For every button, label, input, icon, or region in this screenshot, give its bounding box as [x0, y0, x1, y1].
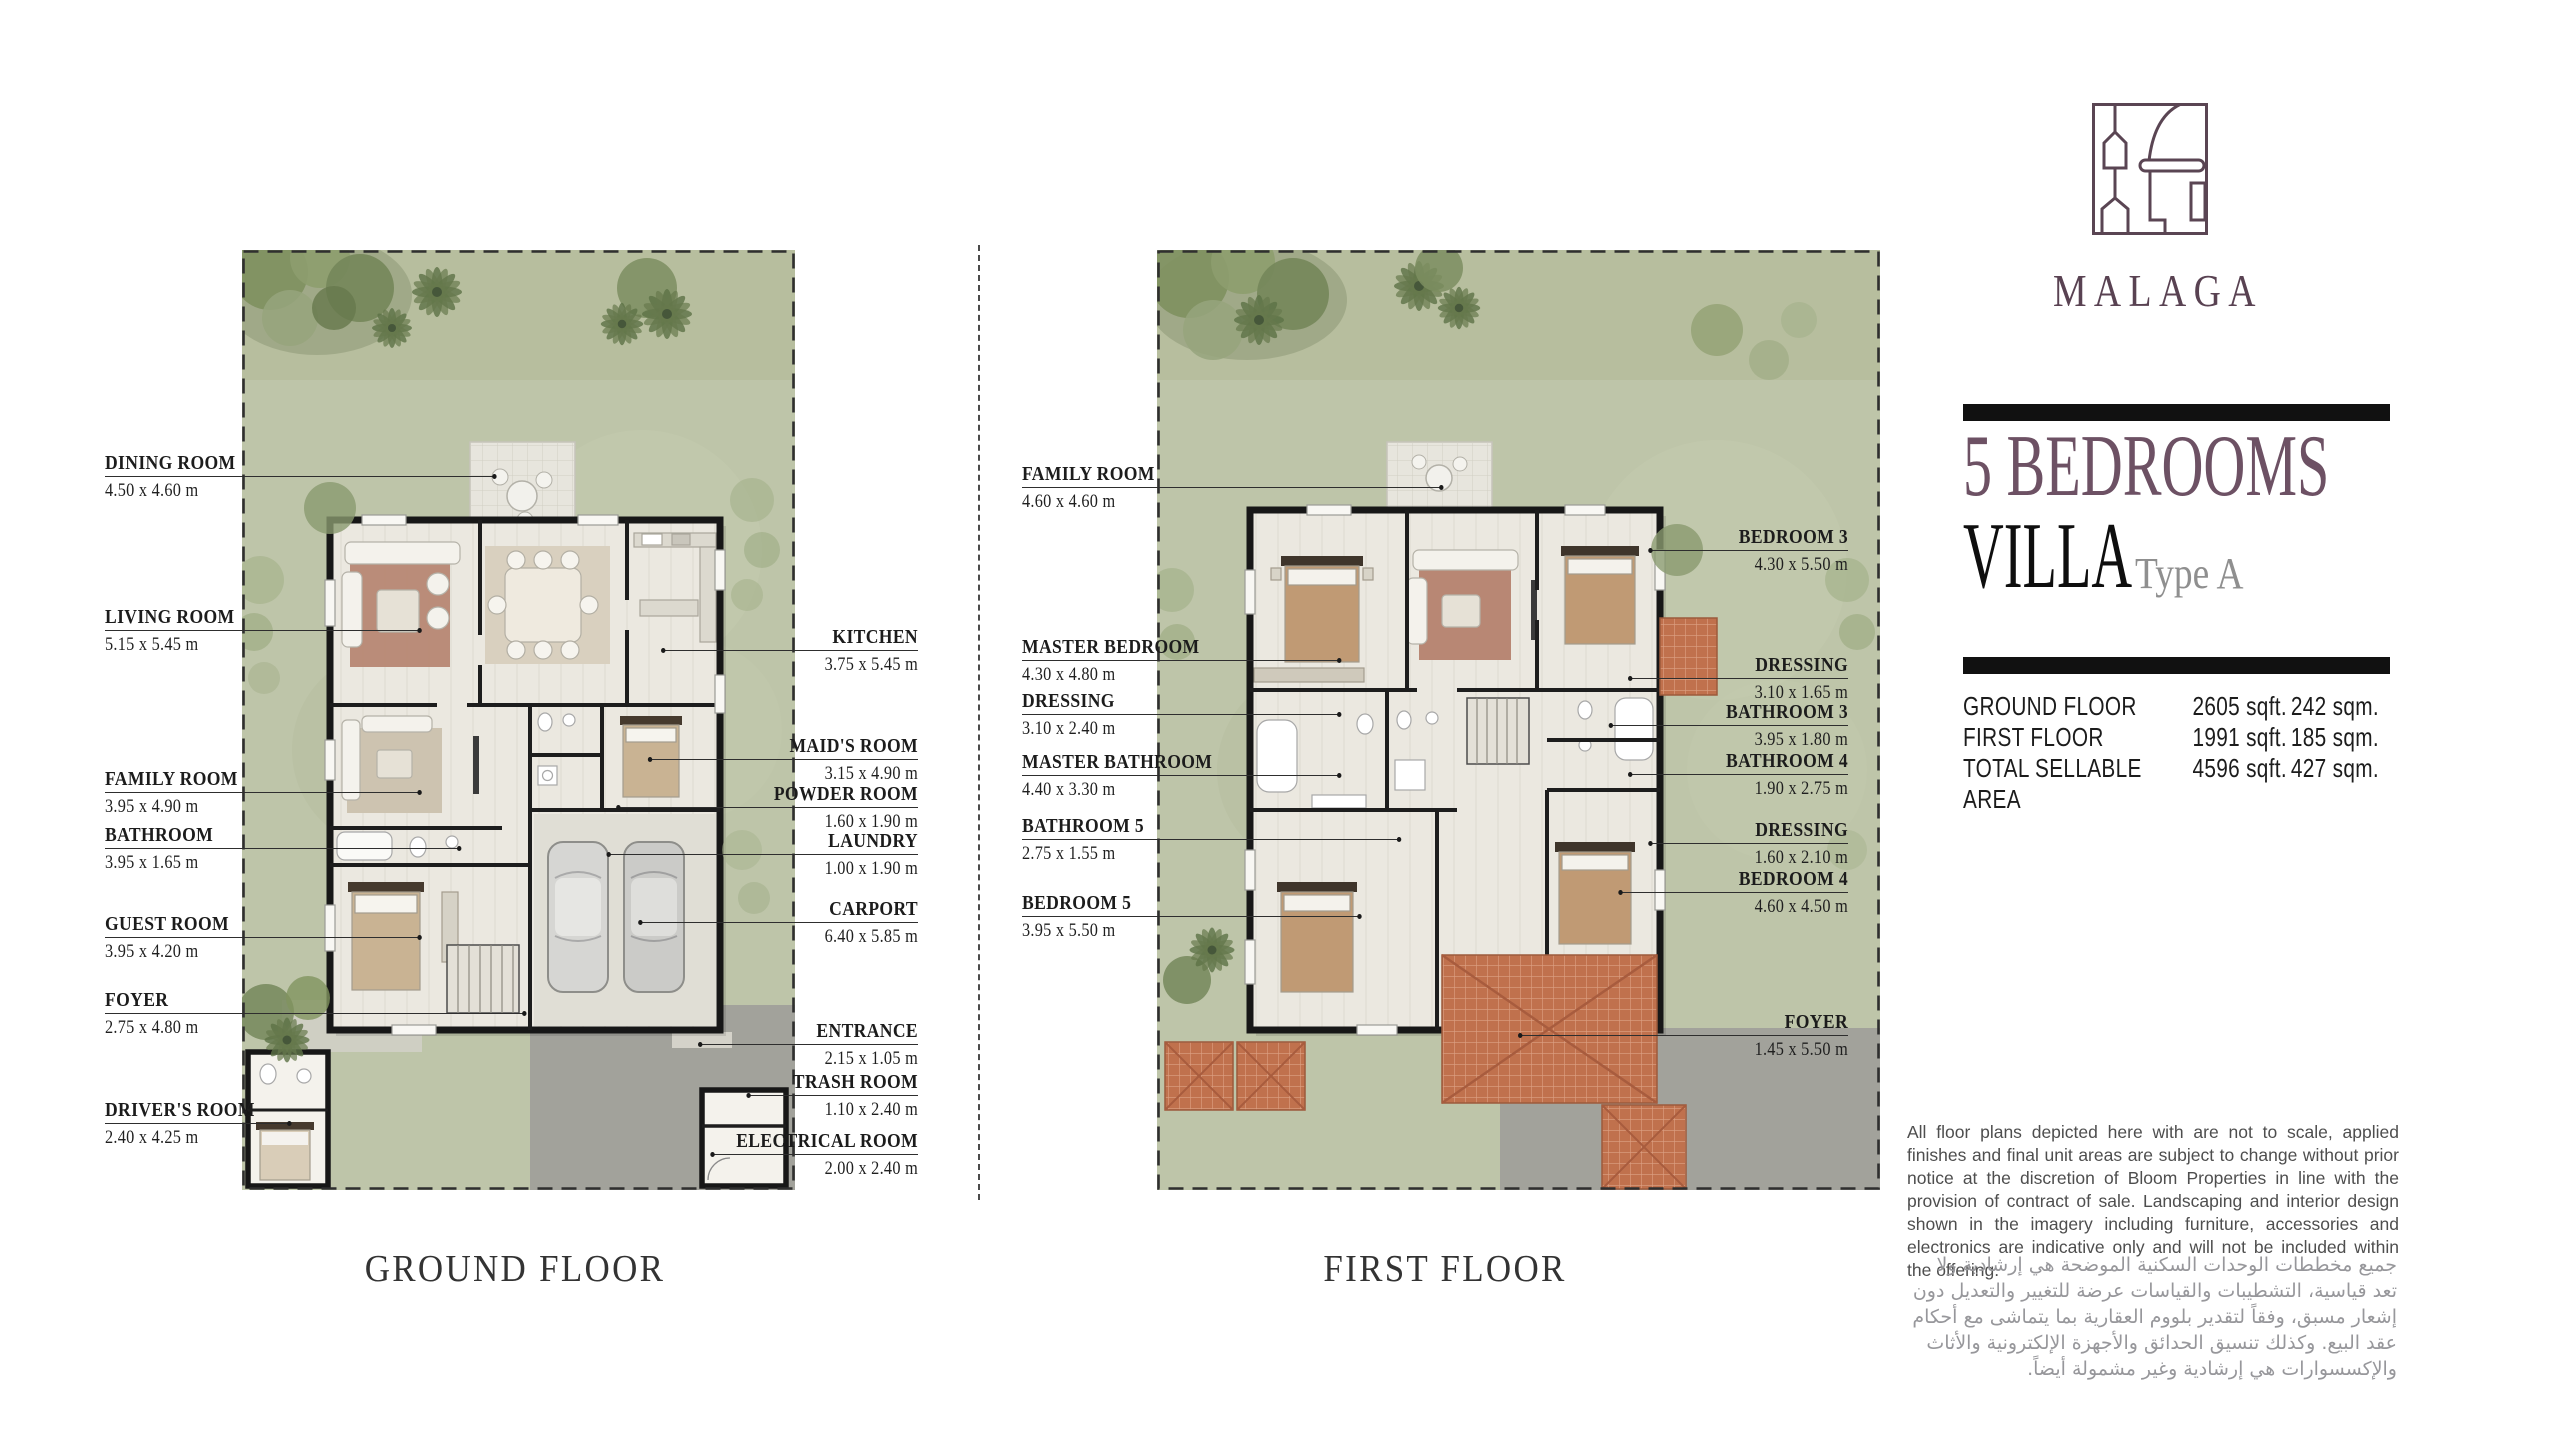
leader-line: [1022, 487, 1442, 488]
room-dims: 3.95 x 1.65 m: [105, 853, 460, 874]
room-dims: 1.00 x 1.90 m: [608, 859, 918, 880]
room-label-electrical-room: ELECTRICAL ROOM2.00 x 2.40 m: [712, 1130, 918, 1180]
bedroom3-furniture: [1561, 546, 1639, 644]
room-name: DRESSING: [1022, 690, 1340, 712]
leader-line: [1630, 774, 1848, 775]
ground-floor-caption: GROUND FLOOR: [365, 1247, 666, 1291]
area-label: TOTAL SELLABLE AREA: [1963, 753, 2179, 815]
room-label-entrance: ENTRANCE2.15 x 1.05 m: [700, 1020, 918, 1070]
room-name: ELECTRICAL ROOM: [712, 1130, 918, 1152]
room-dims: 6.40 x 5.85 m: [640, 927, 918, 948]
room-label-master-bedroom: MASTER BEDROOM4.30 x 4.80 m: [1022, 636, 1340, 686]
leader-line: [1610, 725, 1848, 726]
room-dims: 4.30 x 4.80 m: [1022, 665, 1340, 686]
room-label-dining-room: DINING ROOM4.50 x 4.60 m: [105, 452, 495, 502]
room-label-carport: CARPORT6.40 x 5.85 m: [640, 898, 918, 948]
room-label-bedroom3: BEDROOM 34.30 x 5.50 m: [1650, 526, 1848, 576]
room-dims: 4.30 x 5.50 m: [1650, 555, 1848, 576]
room-label-ff-foyer: FOYER1.45 x 5.50 m: [1520, 1011, 1848, 1061]
leader-line: [105, 792, 420, 793]
dining-room-furniture: [485, 546, 610, 664]
leader-line: [105, 476, 495, 477]
room-dims: 3.15 x 4.90 m: [650, 764, 918, 785]
section-divider: [978, 245, 980, 1200]
brochure-page: DINING ROOM4.50 x 4.60 m LIVING ROOM5.15…: [0, 0, 2560, 1440]
area-sqft: 2605 sqft.: [2179, 691, 2287, 722]
leader-line: [663, 650, 918, 651]
room-dims: 4.40 x 3.30 m: [1022, 780, 1340, 801]
room-label-powder-room: POWDER ROOM1.60 x 1.90 m: [618, 783, 918, 833]
room-label-master-bathroom: MASTER BATHROOM4.40 x 3.30 m: [1022, 751, 1340, 801]
area-row-total: TOTAL SELLABLE AREA 4596 sqft. 427 sqm.: [1963, 753, 2379, 815]
area-row-ground: GROUND FLOOR 2605 sqft. 242 sqm.: [1963, 691, 2379, 722]
room-label-bedroom4: BEDROOM 44.60 x 4.50 m: [1620, 868, 1848, 918]
room-name: KITCHEN: [663, 626, 918, 648]
room-label-family-room: FAMILY ROOM3.95 x 4.90 m: [105, 768, 420, 818]
room-dims: 3.95 x 4.20 m: [105, 942, 420, 963]
room-dims: 2.75 x 1.55 m: [1022, 844, 1400, 865]
leader-line: [105, 1123, 290, 1124]
room-name: ENTRANCE: [700, 1020, 918, 1042]
leader-line: [748, 1095, 918, 1096]
room-name: MAID'S ROOM: [650, 735, 918, 757]
room-name: TRASH ROOM: [748, 1071, 918, 1093]
room-dims: 2.15 x 1.05 m: [700, 1049, 918, 1070]
area-sqft: 4596 sqft.: [2179, 753, 2287, 815]
room-dims: 3.95 x 4.90 m: [105, 797, 420, 818]
leader-line: [618, 807, 918, 808]
room-label-drivers-room: DRIVER'S ROOM2.40 x 4.25 m: [105, 1099, 290, 1149]
room-label-ff-dressing: DRESSING3.10 x 2.40 m: [1022, 690, 1340, 740]
room-dims: 1.10 x 2.40 m: [748, 1100, 918, 1121]
car: [548, 842, 608, 992]
room-dims: 3.75 x 5.45 m: [663, 655, 918, 676]
room-name: GUEST ROOM: [105, 913, 420, 935]
room-dims: 2.40 x 4.25 m: [105, 1128, 290, 1149]
room-name: MASTER BATHROOM: [1022, 751, 1340, 773]
room-name: BATHROOM: [105, 824, 460, 846]
room-label-foyer: FOYER2.75 x 4.80 m: [105, 989, 525, 1039]
title-villa: VILLA: [1963, 508, 2132, 604]
room-label-kitchen: KITCHEN3.75 x 5.45 m: [663, 626, 918, 676]
stairs: [1467, 698, 1529, 764]
room-label-laundry: LAUNDRY1.00 x 1.90 m: [608, 830, 918, 880]
disclaimer-arabic: جميع مخططات الوحدات السكنية الموضحة هي إ…: [1911, 1252, 2397, 1382]
room-name: LIVING ROOM: [105, 606, 420, 628]
room-label-maids-room: MAID'S ROOM3.15 x 4.90 m: [650, 735, 918, 785]
leader-line: [1650, 843, 1848, 844]
room-dims: 1.90 x 2.75 m: [1630, 779, 1848, 800]
room-dims: 5.15 x 5.45 m: [105, 635, 420, 656]
title-divider-bar-bottom: [1963, 657, 2390, 674]
room-label-bathroom4: BATHROOM 41.90 x 2.75 m: [1630, 750, 1848, 800]
leader-line: [1620, 892, 1848, 893]
room-name: CARPORT: [640, 898, 918, 920]
room-name: DRIVER'S ROOM: [105, 1099, 290, 1121]
room-name: FOYER: [105, 989, 525, 1011]
room-name: BATHROOM 3: [1610, 701, 1848, 723]
room-dims: 4.60 x 4.60 m: [1022, 492, 1442, 513]
room-name: BEDROOM 5: [1022, 892, 1360, 914]
area-sqft: 1991 sqft.: [2179, 722, 2287, 753]
area-label: FIRST FLOOR: [1963, 722, 2179, 753]
area-table: GROUND FLOOR 2605 sqft. 242 sqm. FIRST F…: [1963, 691, 2379, 815]
room-name: MASTER BEDROOM: [1022, 636, 1340, 658]
room-label-dressing4: DRESSING1.60 x 2.10 m: [1650, 819, 1848, 869]
room-name: FOYER: [1520, 1011, 1848, 1033]
leader-line: [1022, 714, 1340, 715]
room-name: BEDROOM 4: [1620, 868, 1848, 890]
leader-line: [105, 630, 420, 631]
malaga-logo-icon: [2092, 103, 2208, 235]
room-label-bedroom5: BEDROOM 53.95 x 5.50 m: [1022, 892, 1360, 942]
leader-line: [1520, 1035, 1848, 1036]
room-dims: 3.10 x 2.40 m: [1022, 719, 1340, 740]
room-name: FAMILY ROOM: [1022, 463, 1442, 485]
room-dims: 1.60 x 2.10 m: [1650, 848, 1848, 869]
room-name: FAMILY ROOM: [105, 768, 420, 790]
first-floor-caption: FIRST FLOOR: [1323, 1247, 1566, 1291]
room-label-guest-room: GUEST ROOM3.95 x 4.20 m: [105, 913, 420, 963]
room-dims: 4.60 x 4.50 m: [1620, 897, 1848, 918]
area-sqm: 427 sqm.: [2287, 753, 2379, 815]
leader-line: [1022, 660, 1340, 661]
room-dims: 2.00 x 2.40 m: [712, 1159, 918, 1180]
room-label-bathroom5: BATHROOM 52.75 x 1.55 m: [1022, 815, 1400, 865]
room-name: POWDER ROOM: [618, 783, 918, 805]
leader-line: [700, 1044, 918, 1045]
room-dims: 4.50 x 4.60 m: [105, 481, 495, 502]
leader-line: [650, 759, 918, 760]
room-name: BATHROOM 4: [1630, 750, 1848, 772]
leader-line: [712, 1154, 918, 1155]
title-bedrooms: 5 BEDROOMS: [1963, 422, 2329, 512]
title-type-label: Type A: [2135, 548, 2244, 599]
room-dims: 3.95 x 1.80 m: [1610, 730, 1848, 751]
area-label: GROUND FLOOR: [1963, 691, 2179, 722]
leader-line: [1022, 916, 1360, 917]
room-name: DRESSING: [1630, 654, 1848, 676]
room-name: DINING ROOM: [105, 452, 495, 474]
leader-line: [640, 922, 918, 923]
brand-name: MALAGA: [2053, 264, 2263, 317]
room-label-trash-room: TRASH ROOM1.10 x 2.40 m: [748, 1071, 918, 1121]
room-name: BEDROOM 3: [1650, 526, 1848, 548]
leader-line: [105, 848, 460, 849]
area-row-first: FIRST FLOOR 1991 sqft. 185 sqm.: [1963, 722, 2379, 753]
room-dims: 1.45 x 5.50 m: [1520, 1040, 1848, 1061]
area-sqm: 185 sqm.: [2287, 722, 2379, 753]
leader-line: [1630, 678, 1848, 679]
room-label-living-room: LIVING ROOM5.15 x 5.45 m: [105, 606, 420, 656]
room-label-bathroom: BATHROOM3.95 x 1.65 m: [105, 824, 460, 874]
leader-line: [1650, 550, 1848, 551]
leader-line: [105, 1013, 525, 1014]
room-dims: 2.75 x 4.80 m: [105, 1018, 525, 1039]
leader-line: [1022, 839, 1400, 840]
room-name: LAUNDRY: [608, 830, 918, 852]
leader-line: [105, 937, 420, 938]
room-name: DRESSING: [1650, 819, 1848, 841]
leader-line: [608, 854, 918, 855]
leader-line: [1022, 775, 1340, 776]
room-label-ff-family-room: FAMILY ROOM4.60 x 4.60 m: [1022, 463, 1442, 513]
area-sqm: 242 sqm.: [2287, 691, 2379, 722]
room-label-dressing3: DRESSING3.10 x 1.65 m: [1630, 654, 1848, 704]
room-dims: 3.95 x 5.50 m: [1022, 921, 1360, 942]
room-name: BATHROOM 5: [1022, 815, 1400, 837]
room-label-bathroom3: BATHROOM 33.95 x 1.80 m: [1610, 701, 1848, 751]
